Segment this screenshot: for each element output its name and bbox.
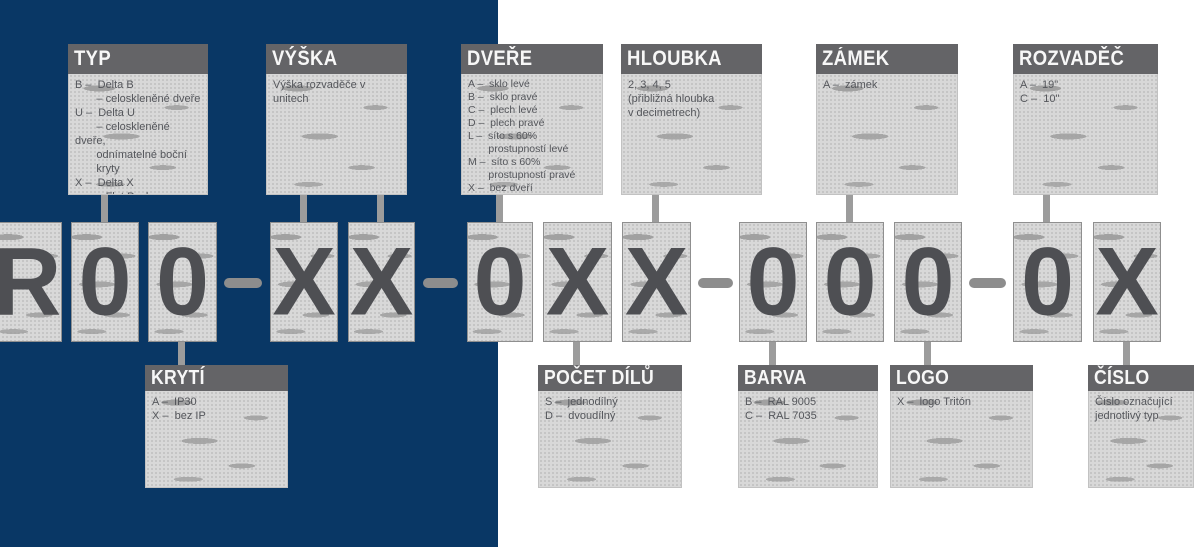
code-separator-dash <box>969 278 1006 288</box>
legend-title-text: POČET DÍLŮ <box>544 367 654 390</box>
code-char-8: X <box>622 222 691 342</box>
code-char-glyph: 0 <box>1021 234 1074 331</box>
code-char-glyph: X <box>1095 234 1158 331</box>
code-char-glyph: R <box>0 234 61 331</box>
legend-title-logo: LOGO <box>890 365 1033 391</box>
legend-title-text: ČÍSLO <box>1094 367 1150 390</box>
legend-box-dvere: DVEŘE A – sklo levé B – sklo pravé C – p… <box>461 44 603 195</box>
legend-title-text: ZÁMEK <box>822 47 889 71</box>
connector-line <box>300 195 307 223</box>
legend-title-text: BARVA <box>744 367 807 390</box>
connector-line <box>496 195 503 223</box>
code-char-glyph: 0 <box>902 234 955 331</box>
legend-body-typ: B – Delta B – celoskleněné dveře U – Del… <box>68 74 208 195</box>
connector-line <box>573 341 580 366</box>
legend-body-zamek: A – zámek <box>816 74 958 195</box>
legend-title-hloubka: HLOUBKA <box>621 44 762 74</box>
legend-box-pocet-dilu: POČET DÍLŮ S – jednodílný D – dvoudílný <box>538 365 682 488</box>
legend-body-dvere: A – sklo levé B – sklo pravé C – plech l… <box>461 74 603 195</box>
legend-body-barva: B – RAL 9005 C – RAL 7035 <box>738 391 878 488</box>
connector-line <box>377 195 384 223</box>
code-char-glyph: 0 <box>79 234 132 331</box>
code-char-9: 0 <box>739 222 807 342</box>
connector-line <box>924 341 931 366</box>
legend-title-text: KRYTÍ <box>151 367 205 390</box>
legend-title-vyska: VÝŠKA <box>266 44 407 74</box>
code-separator-dash <box>224 278 262 288</box>
legend-box-zamek: ZÁMEK A – zámek <box>816 44 958 195</box>
code-char-4: X <box>270 222 338 342</box>
code-char-2: 0 <box>71 222 139 342</box>
legend-title-rozvadec: ROZVADĚČ <box>1013 44 1158 74</box>
code-char-glyph: X <box>350 234 413 331</box>
legend-body-cislo: Číslo označující jednotlivý typ <box>1088 391 1194 488</box>
legend-body-rozvadec: A – 19" C – 10" <box>1013 74 1158 195</box>
code-char-13: X <box>1093 222 1161 342</box>
legend-title-text: HLOUBKA <box>627 47 722 71</box>
legend-title-zamek: ZÁMEK <box>816 44 958 74</box>
legend-box-barva: BARVA B – RAL 9005 C – RAL 7035 <box>738 365 878 488</box>
code-char-glyph: 0 <box>824 234 877 331</box>
legend-body-pocet-dilu: S – jednodílný D – dvoudílný <box>538 391 682 488</box>
code-char-10: 0 <box>816 222 884 342</box>
code-char-1: R <box>0 222 62 342</box>
legend-title-pocet-dilu: POČET DÍLŮ <box>538 365 682 391</box>
code-char-6: 0 <box>467 222 533 342</box>
legend-body-logo: X – logo Tritón <box>890 391 1033 488</box>
code-char-glyph: X <box>546 234 609 331</box>
legend-title-cislo: ČÍSLO <box>1088 365 1194 391</box>
legend-title-text: TYP <box>74 47 111 71</box>
legend-body-hloubka: 2, 3, 4, 5 (přibližná hloubka v decimetr… <box>621 74 762 195</box>
code-char-glyph: X <box>625 234 688 331</box>
code-separator-dash <box>423 278 458 288</box>
legend-box-kryti: KRYTÍ A – IP30 X – bez IP <box>145 365 288 488</box>
connector-line <box>178 341 185 366</box>
legend-title-text: ROZVADĚČ <box>1019 47 1124 71</box>
connector-line <box>769 341 776 366</box>
legend-body-kryti: A – IP30 X – bez IP <box>145 391 288 488</box>
connector-line <box>101 195 108 223</box>
code-char-3: 0 <box>148 222 217 342</box>
code-char-glyph: X <box>272 234 335 331</box>
legend-body-vyska: Výška rozvaděče v unitech <box>266 74 407 195</box>
legend-box-hloubka: HLOUBKA 2, 3, 4, 5 (přibližná hloubka v … <box>621 44 762 195</box>
legend-box-typ: TYP B – Delta B – celoskleněné dveře U –… <box>68 44 208 195</box>
code-separator-dash <box>698 278 733 288</box>
code-char-glyph: 0 <box>747 234 800 331</box>
legend-title-kryti: KRYTÍ <box>145 365 288 391</box>
code-char-glyph: 0 <box>474 234 527 331</box>
legend-title-barva: BARVA <box>738 365 878 391</box>
connector-line <box>846 195 853 223</box>
legend-box-rozvadec: ROZVADĚČ A – 19" C – 10" <box>1013 44 1158 195</box>
connector-line <box>1043 195 1050 223</box>
legend-title-text: VÝŠKA <box>272 47 337 71</box>
connector-line <box>1123 341 1130 366</box>
legend-box-cislo: ČÍSLO Číslo označující jednotlivý typ <box>1088 365 1194 488</box>
legend-title-text: LOGO <box>896 367 949 390</box>
code-char-5: X <box>348 222 415 342</box>
product-code-diagram: TYP B – Delta B – celoskleněné dveře U –… <box>0 0 1195 547</box>
legend-box-logo: LOGO X – logo Tritón <box>890 365 1033 488</box>
connector-line <box>652 195 659 223</box>
legend-title-dvere: DVEŘE <box>461 44 603 74</box>
code-char-12: 0 <box>1013 222 1082 342</box>
legend-title-typ: TYP <box>68 44 208 74</box>
code-char-11: 0 <box>894 222 962 342</box>
code-char-7: X <box>543 222 612 342</box>
legend-box-vyska: VÝŠKA Výška rozvaděče v unitech <box>266 44 407 195</box>
legend-title-text: DVEŘE <box>467 47 532 71</box>
code-char-glyph: 0 <box>156 234 209 331</box>
